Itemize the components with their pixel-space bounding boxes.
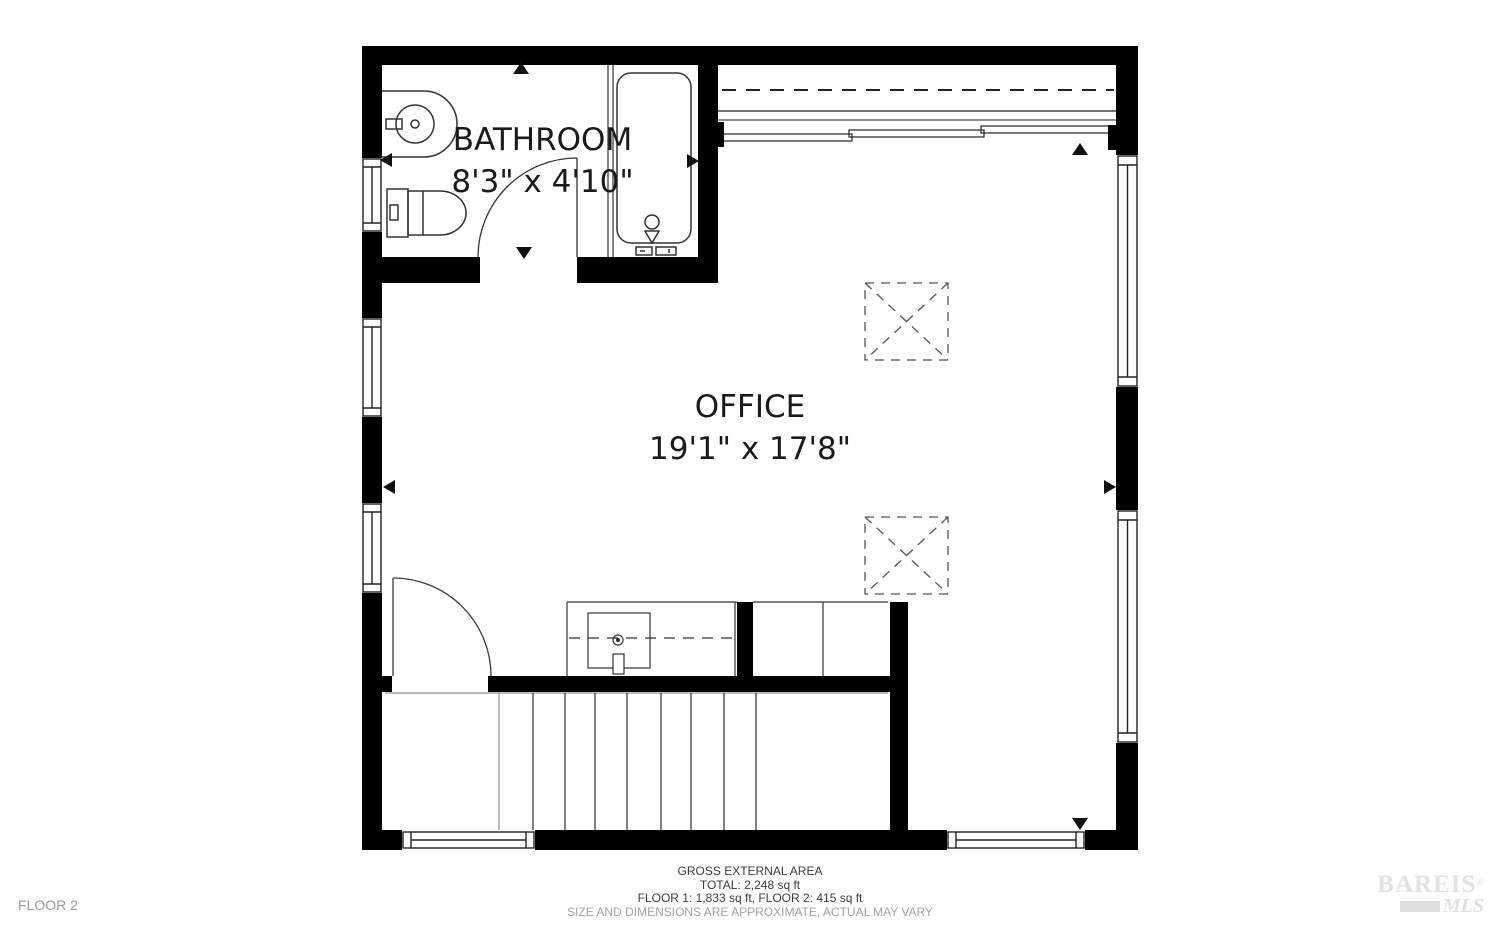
stair-door xyxy=(393,578,491,676)
logo-brand: BAREIS® xyxy=(1377,874,1484,897)
staircase xyxy=(385,578,888,830)
slider-panel xyxy=(723,134,852,141)
area-summary: GROSS EXTERNAL AREA TOTAL: 2,248 sq ft F… xyxy=(0,865,1500,919)
arrow-up-icon xyxy=(1072,143,1088,155)
stair-top-wall xyxy=(488,676,890,692)
total-area: TOTAL: 2,248 sq ft xyxy=(0,879,1500,893)
logo-mls-text: MLS xyxy=(1443,898,1484,914)
skylight xyxy=(865,517,948,594)
room-name: OFFICE xyxy=(570,387,930,429)
wall-bottom xyxy=(362,830,402,850)
stair-top-wall xyxy=(362,676,392,692)
office-label: OFFICE 19'1" x 17'8" xyxy=(570,387,930,470)
window xyxy=(1118,156,1137,386)
landing-area xyxy=(567,602,888,676)
wall-bottom xyxy=(535,830,947,850)
logo-subrow: MLS xyxy=(1377,898,1484,914)
wall-left xyxy=(362,46,382,158)
gross-area-title: GROSS EXTERNAL AREA xyxy=(0,865,1500,879)
logo-bar xyxy=(1400,901,1440,912)
arrow-right-icon xyxy=(1104,480,1116,494)
slider-panel xyxy=(981,126,1111,133)
window xyxy=(948,832,1084,848)
room-name: BATHROOM xyxy=(390,120,695,162)
stair-right-wall xyxy=(890,602,908,830)
window xyxy=(363,159,381,231)
wall-left xyxy=(362,417,382,503)
slider-end-block xyxy=(718,122,724,147)
disclaimer-text: SIZE AND DIMENSIONS ARE APPROXIMATE, ACT… xyxy=(0,906,1500,920)
wall-top xyxy=(362,46,1138,65)
room-dimensions: 19'1" x 17'8" xyxy=(570,429,930,471)
floor-label: FLOOR 2 xyxy=(18,897,78,913)
slider-end-block xyxy=(1108,125,1118,150)
floor-areas: FLOOR 1: 1,833 sq ft, FLOOR 2: 415 sq ft xyxy=(0,892,1500,906)
sliding-door xyxy=(718,90,1118,150)
skylight xyxy=(865,283,948,360)
arrow-down-icon xyxy=(516,247,532,259)
bathroom-bottom-wall xyxy=(577,257,718,283)
floor-plan-page: BATHROOM 8'3" x 4'10" OFFICE 19'1" x 17'… xyxy=(0,0,1500,937)
bathroom-label: BATHROOM 8'3" x 4'10" xyxy=(390,120,695,203)
arrow-left-icon xyxy=(383,480,395,494)
window xyxy=(403,832,534,848)
bathroom-right-wall xyxy=(698,46,718,283)
brand-text: BAREIS xyxy=(1377,871,1476,898)
slider-panel xyxy=(849,130,984,137)
bathroom-bottom-wall xyxy=(362,257,480,283)
landing-wall xyxy=(737,602,753,676)
arrow-down-icon xyxy=(1072,818,1088,830)
wall-left xyxy=(362,593,382,850)
room-dimensions: 8'3" x 4'10" xyxy=(390,162,695,204)
wall-bottom xyxy=(1085,830,1138,850)
window xyxy=(1118,511,1137,742)
bareis-mls-logo: BAREIS® MLS xyxy=(1377,874,1484,914)
window xyxy=(363,319,381,416)
mechanical-unit xyxy=(588,613,650,674)
wall-right xyxy=(1116,387,1138,510)
registered-mark: ® xyxy=(1476,878,1484,889)
window xyxy=(363,504,381,592)
wall-right xyxy=(1116,46,1138,155)
